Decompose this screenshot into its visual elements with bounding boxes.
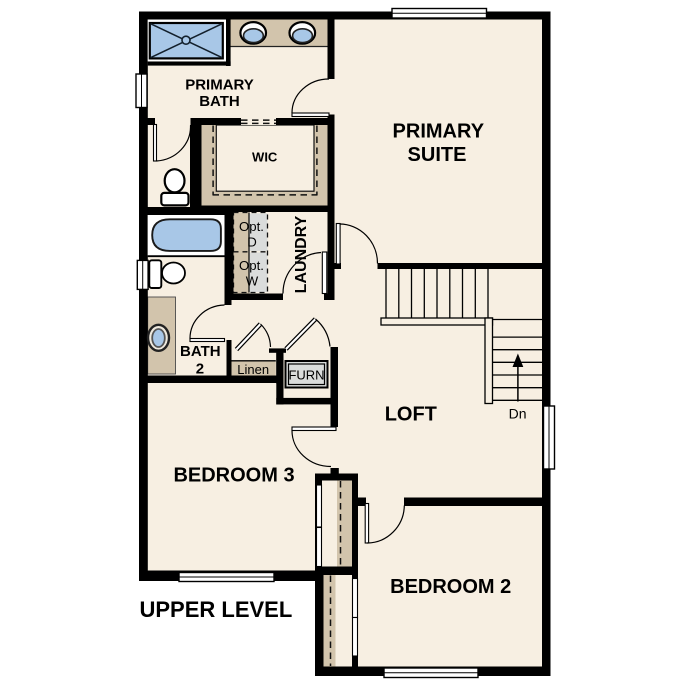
- svg-text:LOFT: LOFT: [385, 403, 437, 425]
- svg-text:Opt.: Opt.: [239, 258, 264, 273]
- svg-text:PRIMARY: PRIMARY: [393, 121, 485, 143]
- svg-text:WIC: WIC: [252, 150, 278, 165]
- svg-text:D: D: [247, 234, 257, 249]
- svg-text:SUITE: SUITE: [408, 144, 467, 166]
- svg-text:BEDROOM 3: BEDROOM 3: [173, 464, 294, 486]
- svg-text:Dn: Dn: [509, 406, 527, 422]
- svg-text:Linen: Linen: [237, 362, 269, 377]
- svg-text:BEDROOM 2: BEDROOM 2: [390, 576, 511, 598]
- svg-text:BATH: BATH: [180, 343, 221, 360]
- svg-text:UPPER LEVEL: UPPER LEVEL: [139, 597, 292, 622]
- svg-text:PRIMARY: PRIMARY: [185, 76, 254, 93]
- svg-text:Opt.: Opt.: [239, 219, 264, 234]
- svg-text:BATH: BATH: [199, 93, 240, 110]
- svg-text:2: 2: [196, 360, 204, 377]
- svg-text:W: W: [246, 274, 259, 289]
- svg-text:LAUNDRY: LAUNDRY: [293, 215, 310, 293]
- svg-text:FURN: FURN: [288, 368, 324, 383]
